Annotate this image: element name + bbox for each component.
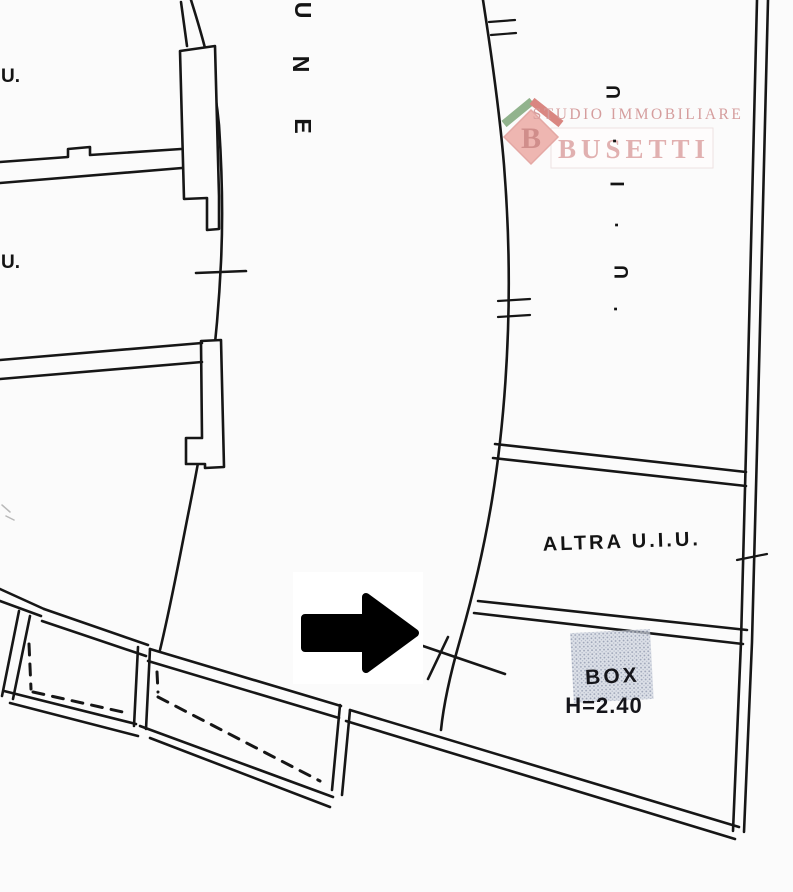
uiu-letter: .	[601, 306, 622, 311]
pointer-annotation	[293, 572, 423, 684]
floor-plan-canvas: B STUDIO IMMOBILIARE BUSETTI	[0, 0, 793, 892]
street-letter: N	[288, 56, 314, 73]
uiu-letter: .	[602, 222, 623, 227]
left-edge-label-fragment: U.	[1, 66, 20, 87]
street-letter: U	[290, 2, 316, 19]
watermark-studio-line: STUDIO IMMOBILIARE	[533, 106, 744, 123]
logo-letter: B	[521, 122, 541, 155]
floor-plan-scan: B STUDIO IMMOBILIARE BUSETTI	[0, 0, 793, 892]
uiu-letter: .	[600, 138, 621, 143]
uiu-letter: U	[612, 265, 633, 279]
box-label-group: BOX	[570, 629, 654, 703]
label-box: BOX	[585, 664, 641, 690]
label-box-height: H=2.40	[565, 693, 643, 718]
street-letter: E	[290, 118, 316, 133]
uiu-letter: I	[608, 181, 629, 186]
left-edge-label-fragment: U.	[1, 252, 20, 273]
watermark-name: BUSETTI	[558, 134, 710, 164]
uiu-letter: U	[604, 85, 625, 99]
